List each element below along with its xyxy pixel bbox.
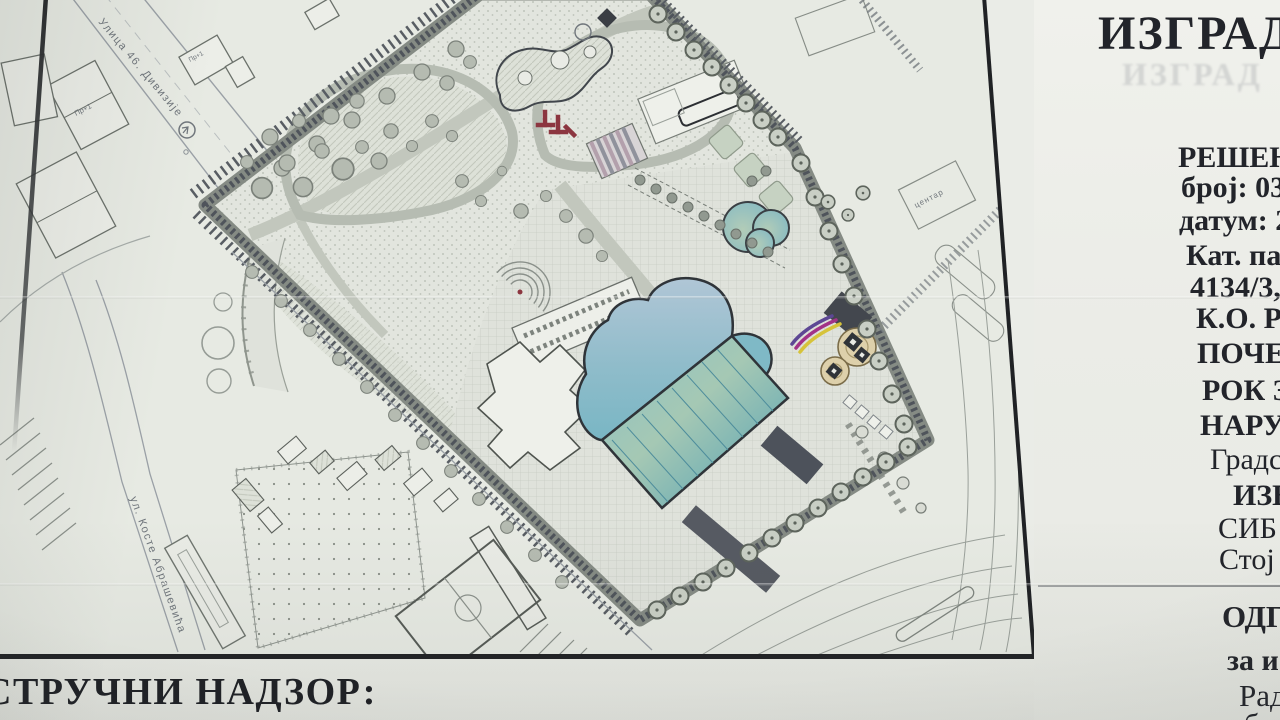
detail-line: б — [1244, 708, 1259, 720]
detail-line: број: 03- — [1181, 171, 1280, 205]
billboard-photo: Улица 46. Дивизије ул. Косте Абрашевића … — [0, 0, 1280, 720]
detail-line: РЕШЕЊ — [1178, 141, 1280, 175]
detail-line: Градс — [1210, 443, 1280, 477]
main-building — [478, 342, 590, 470]
detail-line: К.О. Ри — [1196, 302, 1280, 336]
detail-line: РОК З — [1202, 374, 1280, 408]
detail-line: Кат. пар — [1186, 239, 1280, 273]
detail-line: Стој — [1219, 543, 1275, 577]
detail-line: ПОЧЕТ — [1197, 337, 1280, 371]
site-plan: Улица 46. Дивизије ул. Косте Абрашевића … — [0, 0, 1046, 662]
detail-line: 4134/3, — [1190, 271, 1280, 305]
detail-line: СИБ — [1218, 512, 1277, 546]
detail-line: за и — [1227, 644, 1279, 678]
detail-line: датум: 2 — [1179, 204, 1280, 238]
detail-line: ИЗВО — [1233, 479, 1280, 513]
board-title-ghost: ИЗГРАД — [1122, 56, 1263, 93]
supervision-heading: СТРУЧНИ НАДЗОР: — [0, 670, 377, 714]
detail-line: НАРУ — [1200, 409, 1280, 443]
board-title: ИЗГРАДЊ — [1098, 6, 1280, 61]
detail-line: ОДГ — [1222, 599, 1280, 635]
panel-divider — [1038, 585, 1280, 587]
